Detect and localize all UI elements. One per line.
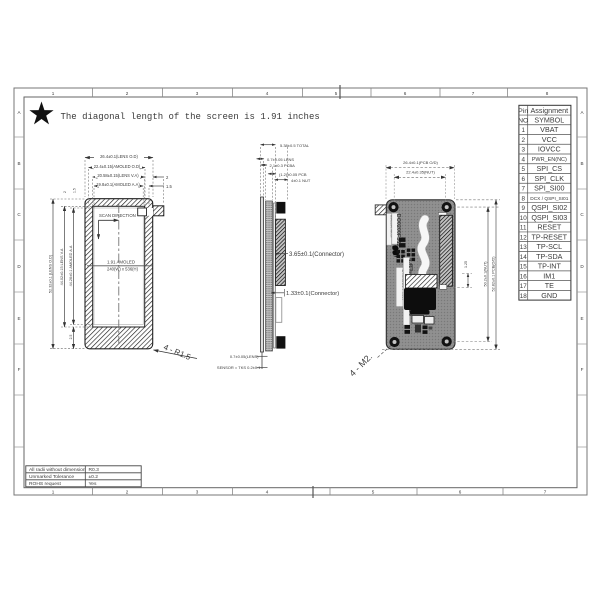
svg-text:F: F: [18, 367, 21, 372]
svg-text:240(W) x 536(H): 240(W) x 536(H): [107, 266, 139, 271]
svg-text:All radii without dimension: All radii without dimension: [29, 467, 86, 473]
svg-text:8: 8: [546, 91, 549, 96]
svg-text:3.65±0.1(Connector): 3.65±0.1(Connector): [289, 252, 344, 258]
svg-text:(1.2)±0.05 PCB: (1.2)±0.05 PCB: [279, 172, 307, 177]
svg-text:8: 8: [521, 195, 525, 202]
svg-text:3: 3: [196, 490, 199, 495]
svg-text:4: 4: [266, 91, 269, 96]
svg-text:ROHS request: ROHS request: [29, 481, 61, 487]
svg-text:7: 7: [544, 490, 547, 495]
svg-text:2: 2: [126, 490, 129, 495]
svg-text:4±0.1 NUT: 4±0.1 NUT: [291, 178, 311, 183]
svg-text:Pin: Pin: [518, 108, 528, 115]
svg-text:13: 13: [520, 244, 528, 251]
svg-text:1.5: 1.5: [166, 184, 172, 189]
svg-text:26.4±0.1(PCB O/D): 26.4±0.1(PCB O/D): [403, 160, 438, 165]
svg-text:1: 1: [521, 127, 525, 134]
svg-text:22.4±0.35(NUT): 22.4±0.35(NUT): [406, 169, 435, 174]
svg-text:6: 6: [521, 176, 525, 183]
svg-text:SPI_CLK: SPI_CLK: [535, 174, 565, 183]
svg-text:SPI_CS: SPI_CS: [537, 164, 563, 173]
svg-text:IOVCC: IOVCC: [538, 145, 561, 154]
svg-text:IM1: IM1: [543, 271, 555, 280]
svg-text:16: 16: [520, 273, 528, 280]
svg-text:F: F: [581, 367, 584, 372]
svg-text:2: 2: [521, 137, 525, 144]
svg-text:4: 4: [266, 490, 269, 495]
svg-text:11: 11: [520, 225, 527, 232]
svg-text:VCC: VCC: [542, 135, 557, 144]
svg-text:4: 4: [521, 156, 525, 163]
svg-text:SPI_SI00: SPI_SI00: [534, 184, 564, 193]
svg-text:NO: NO: [518, 118, 528, 125]
svg-text:SENSOR = TKS 0.2±0.1: SENSOR = TKS 0.2±0.1: [217, 365, 261, 370]
svg-text:Assignment: Assignment: [531, 106, 569, 115]
svg-text:6: 6: [459, 490, 462, 495]
svg-text:7: 7: [472, 91, 475, 96]
svg-text:SYMBOL: SYMBOL: [534, 116, 564, 125]
svg-text:20.58±0.15(LENS V.A): 20.58±0.15(LENS V.A): [97, 173, 139, 178]
svg-text:TP-INT: TP-INT: [538, 262, 562, 271]
svg-text:22.4±0.15(AMOLED O.D): 22.4±0.15(AMOLED O.D): [94, 164, 141, 169]
svg-text:5: 5: [521, 166, 525, 173]
svg-text:44.02±0.15 LENS V.A: 44.02±0.15 LENS V.A: [60, 248, 64, 285]
svg-text:0.7±0.05 LENS: 0.7±0.05 LENS: [267, 157, 294, 162]
svg-text:Yes: Yes: [89, 481, 98, 487]
svg-text:3: 3: [521, 147, 525, 154]
svg-text:TP-RESET: TP-RESET: [532, 232, 568, 241]
svg-text:1.5: 1.5: [73, 188, 77, 193]
svg-text:10: 10: [520, 215, 528, 222]
svg-text:7: 7: [521, 186, 525, 193]
svg-text:1: 1: [52, 91, 55, 96]
svg-text:B: B: [580, 161, 583, 166]
svg-text:TP-SCL: TP-SCL: [537, 242, 563, 251]
svg-text:50.2±0.1(NUT): 50.2±0.1(NUT): [483, 261, 487, 287]
svg-text:2: 2: [63, 191, 67, 193]
svg-text:1: 1: [52, 490, 55, 495]
svg-text:PWR_EN(NC): PWR_EN(NC): [532, 157, 567, 163]
svg-text:VBAT: VBAT: [540, 125, 559, 134]
svg-text:Unmarked Tolerance: Unmarked Tolerance: [29, 474, 74, 480]
svg-text:44.26±0.1 AMOLED A.A: 44.26±0.1 AMOLED A.A: [69, 245, 73, 286]
svg-text:2: 2: [126, 91, 129, 96]
svg-text:R0.3: R0.3: [89, 467, 100, 473]
svg-text:18: 18: [520, 293, 528, 300]
svg-text:±0.2: ±0.2: [89, 474, 99, 480]
svg-text:B: B: [17, 161, 20, 166]
svg-text:14: 14: [520, 254, 528, 261]
svg-text:1.33±0.1(Connector): 1.33±0.1(Connector): [286, 291, 339, 297]
svg-text:TE: TE: [545, 281, 554, 290]
svg-text:RESET: RESET: [537, 223, 562, 232]
svg-text:SCAN DIRECTION: SCAN DIRECTION: [99, 213, 136, 218]
svg-text:3: 3: [196, 91, 199, 96]
svg-text:2.1±0.3 PCBA: 2.1±0.3 PCBA: [270, 163, 296, 168]
svg-text:1.25: 1.25: [464, 261, 468, 268]
svg-text:0.7±0.05(LENS): 0.7±0.05(LENS): [230, 354, 259, 359]
svg-text:52.82±0.1 PCB(O/D): 52.82±0.1 PCB(O/D): [491, 256, 495, 292]
svg-text:E: E: [580, 316, 583, 321]
svg-text:QSPI_SI03: QSPI_SI03: [531, 213, 567, 222]
svg-text:5: 5: [372, 490, 375, 495]
svg-text:5.38±0.5 TOTAL: 5.38±0.5 TOTAL: [280, 143, 310, 148]
svg-text:9: 9: [521, 205, 525, 212]
svg-text:52.32±0.1 (LENS O.D): 52.32±0.1 (LENS O.D): [49, 254, 53, 293]
svg-text:15: 15: [520, 264, 528, 271]
svg-text:GND: GND: [541, 291, 557, 300]
svg-text:12: 12: [520, 234, 528, 241]
svg-text:DCX / QSPI_SI01: DCX / QSPI_SI01: [530, 196, 568, 202]
svg-text:The diagonal length of the scr: The diagonal length of the screen is 1.9…: [61, 112, 320, 122]
svg-text:6: 6: [404, 91, 407, 96]
svg-text:1.91 AMOLED: 1.91 AMOLED: [107, 260, 135, 265]
svg-text:QSPI_SI02: QSPI_SI02: [531, 203, 567, 212]
svg-text:19.8±0.1(AMOLED A.A): 19.8±0.1(AMOLED A.A): [96, 182, 140, 187]
svg-text:TP-SDA: TP-SDA: [536, 252, 563, 261]
svg-text:5: 5: [335, 91, 338, 96]
svg-text:2.5: 2.5: [69, 335, 73, 340]
svg-text:17: 17: [520, 283, 528, 290]
svg-text:E: E: [17, 316, 20, 321]
svg-text:26.4±0.1(LENS O.D): 26.4±0.1(LENS O.D): [100, 154, 138, 159]
